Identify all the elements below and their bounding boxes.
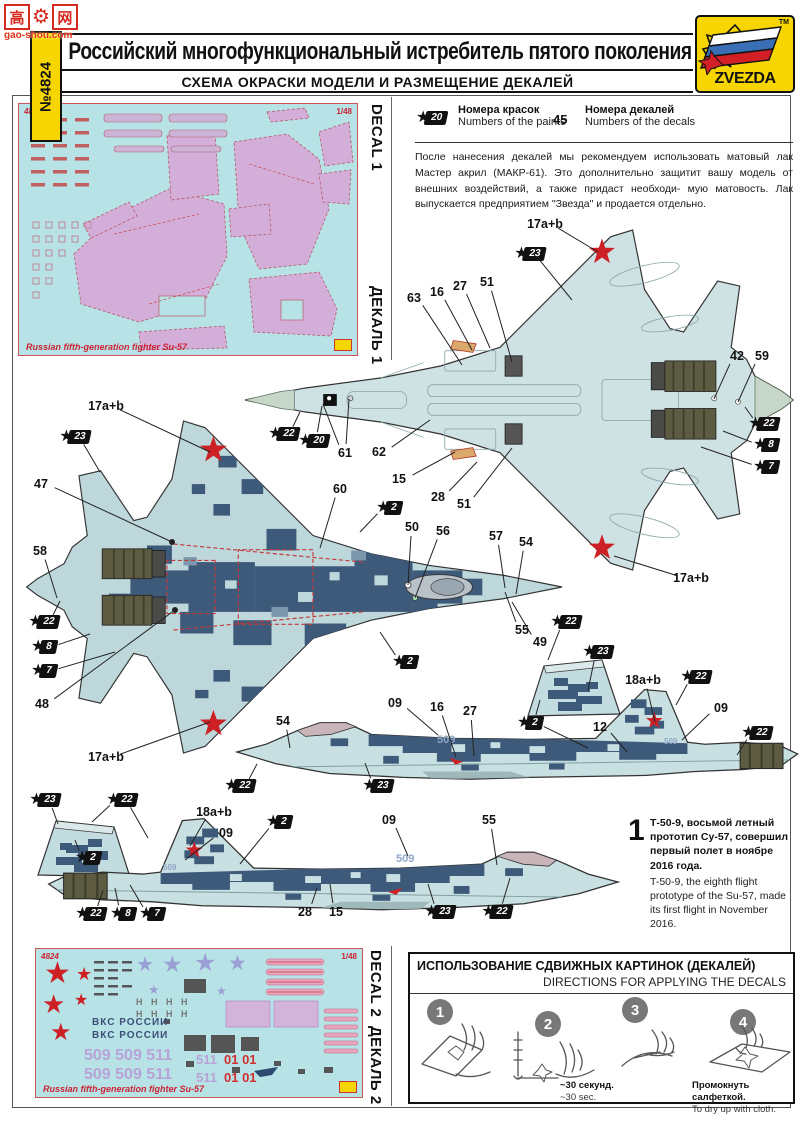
board-number-sv2-front: 509 (396, 853, 414, 865)
side-view-left (49, 819, 618, 910)
watermark: 高 ⚙ 网 gao-shou.com (4, 4, 78, 41)
gear-icon: ⚙ (32, 7, 50, 27)
painting-scheme-diagram: 509 509 509 509 (0, 0, 800, 1130)
board-number-sv1-front: 509 (437, 734, 455, 746)
board-number-sv1-tail: 509 (664, 737, 678, 746)
instruction-sheet-page: 高 ⚙ 网 gao-shou.com №4824 Российский мног… (0, 0, 800, 1130)
side-view-right (237, 690, 798, 780)
fin-detail-right (528, 660, 620, 716)
watermark-char-1: 高 (4, 4, 30, 30)
fin-detail-left (38, 821, 130, 877)
watermark-domain: gao-shou.com (4, 30, 78, 41)
board-number-sv2-tail: 509 (163, 863, 177, 872)
underside-view (245, 230, 793, 570)
top-view (27, 421, 562, 753)
watermark-char-2: 网 (52, 4, 78, 30)
